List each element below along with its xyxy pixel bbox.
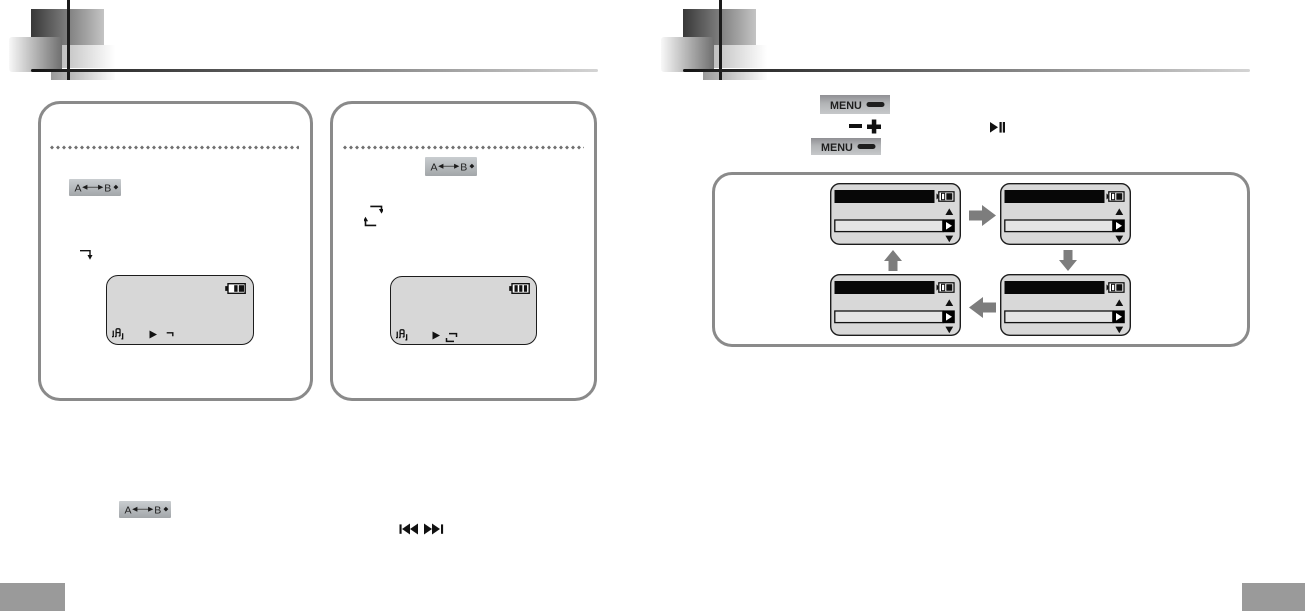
svg-text:B: B xyxy=(104,183,111,195)
svg-text:A: A xyxy=(75,183,82,195)
svg-text:MENU: MENU xyxy=(830,100,862,112)
svg-text:A: A xyxy=(125,505,132,517)
svg-text:A: A xyxy=(430,162,437,174)
svg-text:B: B xyxy=(460,162,467,174)
svg-text:MENU: MENU xyxy=(821,142,853,154)
svg-text:B: B xyxy=(154,505,161,517)
